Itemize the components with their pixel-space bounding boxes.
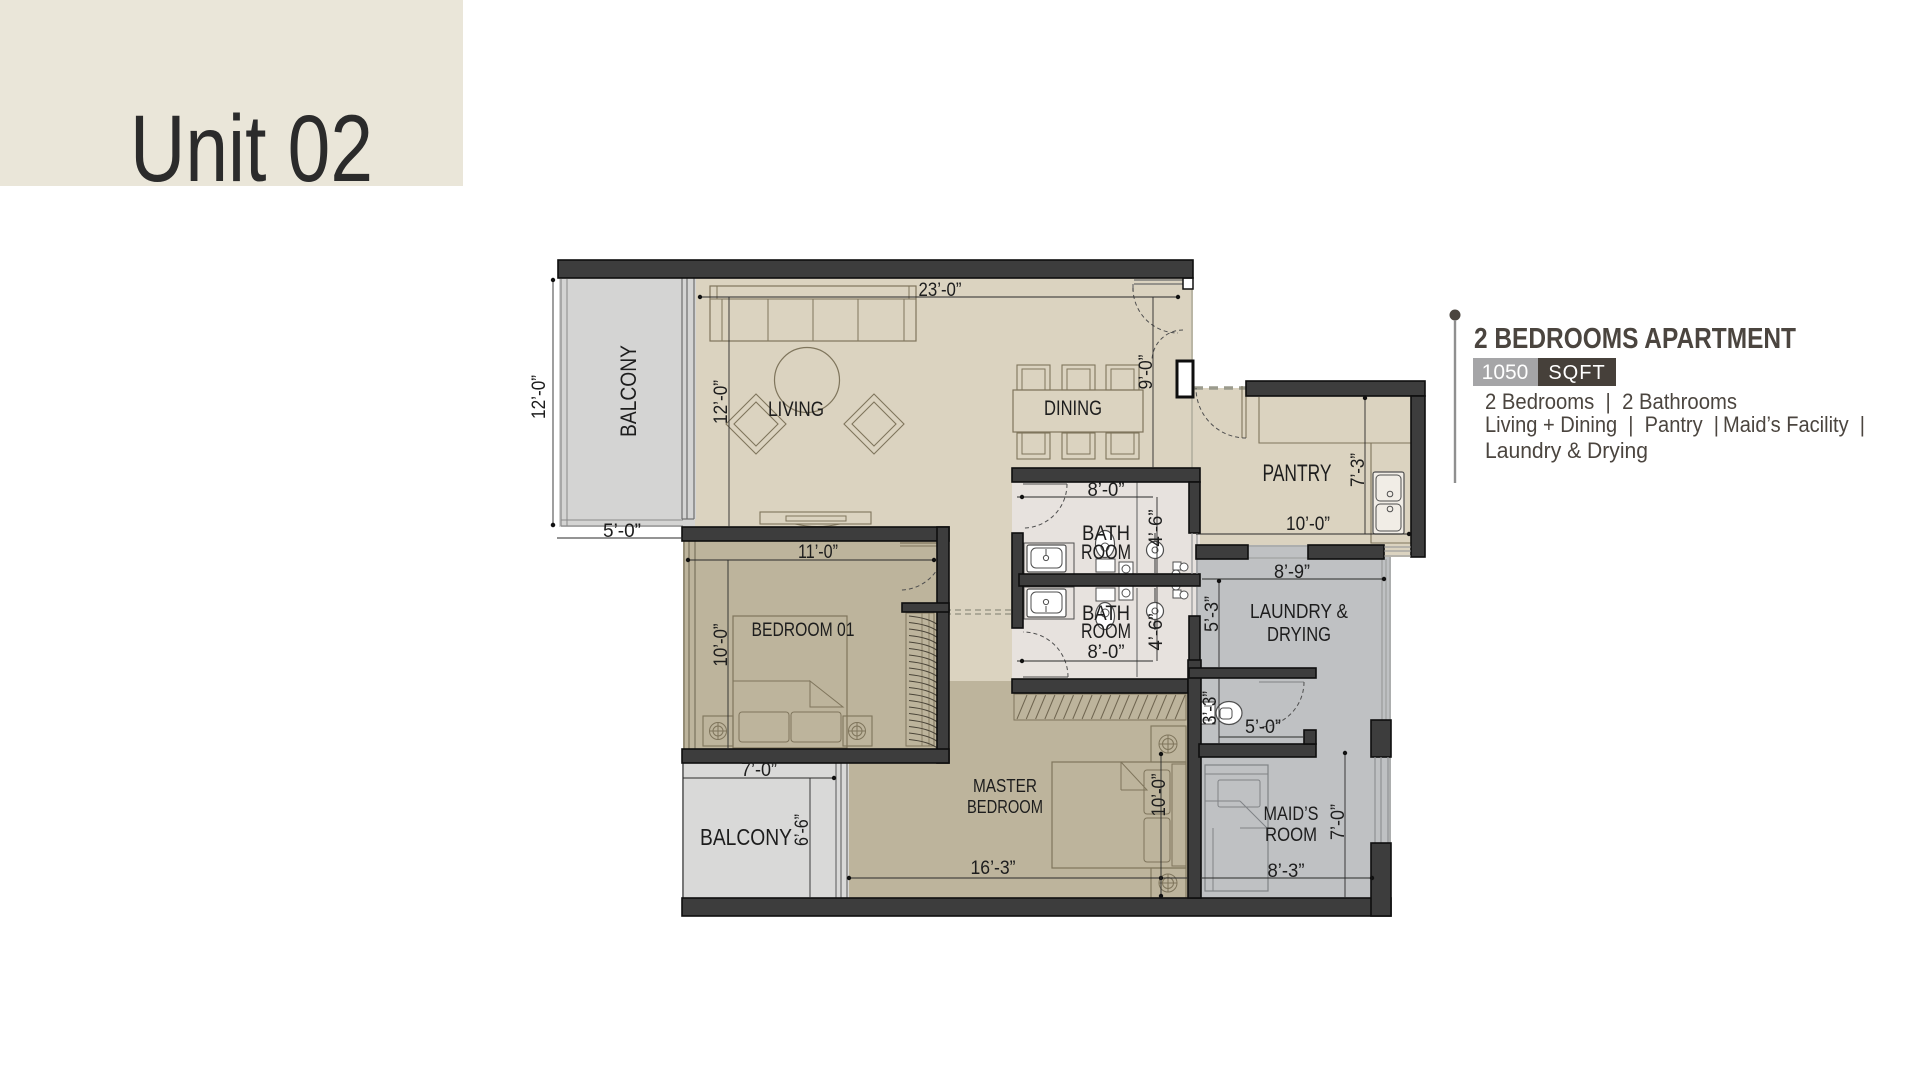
svg-text:10’-0”: 10’-0” [1286, 514, 1330, 535]
svg-text:8’-3”: 8’-3” [1268, 861, 1305, 882]
svg-text:BALCONY: BALCONY [616, 345, 641, 437]
svg-text:11’-0”: 11’-0” [798, 542, 838, 563]
svg-text:4’-6”: 4’-6” [1146, 614, 1167, 651]
svg-text:4’-6”: 4’-6” [1146, 510, 1167, 547]
svg-text:6’-6”: 6’-6” [792, 814, 813, 846]
svg-text:7’-0”: 7’-0” [1328, 804, 1349, 840]
svg-text:10’-0”: 10’-0” [1149, 774, 1170, 817]
svg-text:9’-0”: 9’-0” [1136, 355, 1157, 390]
svg-text:8’-0”: 8’-0” [1088, 642, 1125, 663]
svg-text:LIVING: LIVING [768, 398, 824, 421]
svg-text:SQFT: SQFT [1548, 362, 1605, 384]
svg-text:LAUNDRY &: LAUNDRY & [1250, 601, 1349, 623]
svg-text:8’-9”: 8’-9” [1274, 562, 1310, 583]
svg-text:7’-3”: 7’-3” [1348, 453, 1369, 487]
svg-text:2 BEDROOMS APARTMENT: 2 BEDROOMS APARTMENT [1474, 323, 1796, 355]
svg-text:5’-0”: 5’-0” [603, 521, 641, 542]
svg-text:10’-0”: 10’-0” [711, 624, 732, 667]
svg-text:7’-0”: 7’-0” [741, 760, 777, 781]
svg-text:23’-0”: 23’-0” [919, 280, 962, 301]
svg-text:5’-3”: 5’-3” [1202, 596, 1223, 632]
svg-text:2 Bedrooms | 2 Bathrooms: 2 Bedrooms | 2 Bathrooms [1485, 389, 1737, 414]
svg-text:ROOM: ROOM [1081, 620, 1131, 643]
svg-text:MAID’S: MAID’S [1264, 804, 1319, 825]
svg-text:12’-0”: 12’-0” [711, 380, 732, 424]
svg-text:DINING: DINING [1044, 397, 1102, 420]
svg-text:Unit 02: Unit 02 [130, 96, 373, 202]
svg-text:PANTRY: PANTRY [1263, 460, 1332, 487]
svg-text:Living + Dining | Pantry |: Living + Dining | Pantry | Maid’s Facili… [1485, 412, 1865, 437]
svg-text:5’-0”: 5’-0” [1245, 717, 1281, 738]
svg-text:ROOM: ROOM [1265, 825, 1317, 846]
svg-text:12’-0”: 12’-0” [529, 375, 550, 419]
svg-text:8’-0”: 8’-0” [1088, 480, 1125, 501]
svg-text:1050: 1050 [1482, 361, 1529, 384]
svg-text:BEDROOM: BEDROOM [967, 797, 1043, 817]
svg-text:16’-3”: 16’-3” [971, 858, 1016, 879]
svg-text:BALCONY: BALCONY [700, 824, 792, 850]
svg-text:ROOM: ROOM [1081, 541, 1131, 564]
svg-text:Laundry & Drying: Laundry & Drying [1485, 438, 1648, 463]
svg-text:BEDROOM 01: BEDROOM 01 [752, 620, 855, 641]
svg-text:MASTER: MASTER [973, 776, 1037, 796]
svg-text:3’-3”: 3’-3” [1200, 691, 1221, 725]
svg-text:DRYING: DRYING [1267, 624, 1331, 646]
